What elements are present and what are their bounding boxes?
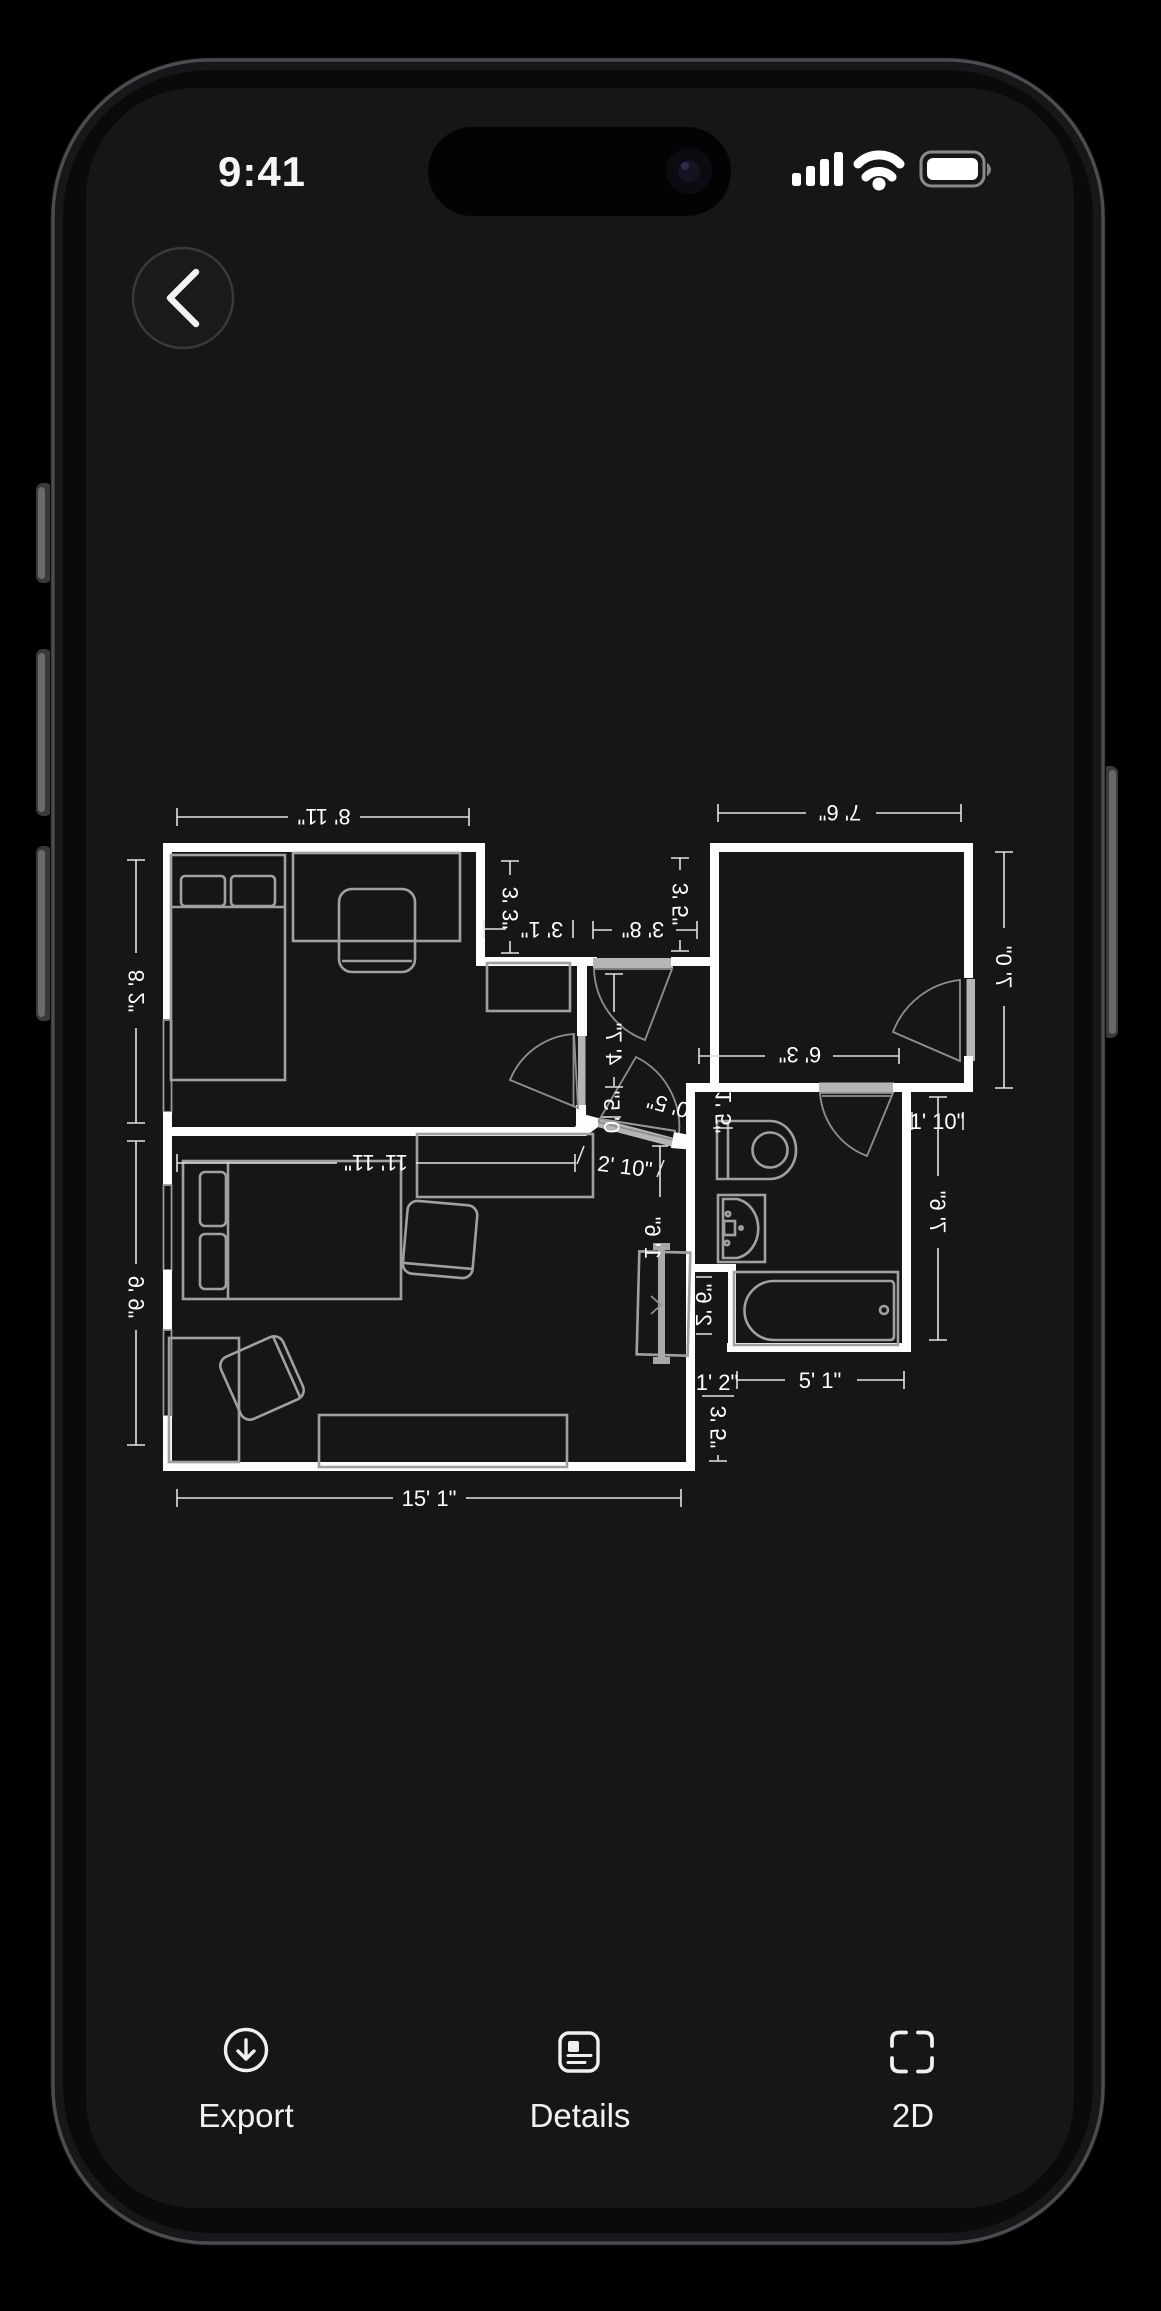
svg-text:1' 6": 1' 6" (640, 1217, 665, 1260)
svg-text:Export: Export (198, 2097, 293, 2134)
svg-text:5' 1": 5' 1" (799, 1368, 842, 1393)
svg-text:15' 1": 15' 1" (402, 1486, 457, 1511)
svg-text:7' 6": 7' 6" (925, 1191, 950, 1234)
svg-text:7' 6": 7' 6" (819, 800, 862, 825)
svg-text:0' 5": 0' 5" (599, 1091, 624, 1134)
svg-text:1' 5": 1' 5" (711, 1091, 736, 1134)
svg-text:9' 9": 9' 9" (124, 1276, 149, 1319)
svg-text:6' 3": 6' 3" (779, 1042, 822, 1067)
svg-text:3' 1": 3' 1" (521, 917, 564, 942)
svg-text:3' 5": 3' 5" (706, 1406, 731, 1449)
svg-text:1' 10": 1' 10" (910, 1109, 965, 1134)
svg-text:3' 3": 3' 3" (498, 887, 523, 930)
svg-text:2D: 2D (892, 2097, 934, 2134)
svg-text:4' 7": 4' 7" (601, 1023, 626, 1066)
svg-text:11' 11": 11' 11" (344, 1150, 408, 1175)
svg-text:1' 2": 1' 2" (696, 1370, 739, 1395)
svg-text:3' 5": 3' 5" (668, 883, 693, 926)
svg-text:3' 8": 3' 8" (622, 917, 665, 942)
svg-text:2' 6": 2' 6" (691, 1284, 716, 1327)
svg-text:8' 2": 8' 2" (124, 970, 149, 1013)
svg-text:Details: Details (530, 2097, 631, 2134)
svg-text:9:41: 9:41 (218, 148, 306, 195)
svg-text:8' 11": 8' 11" (297, 804, 350, 829)
svg-text:7' 0": 7' 0" (991, 946, 1016, 989)
